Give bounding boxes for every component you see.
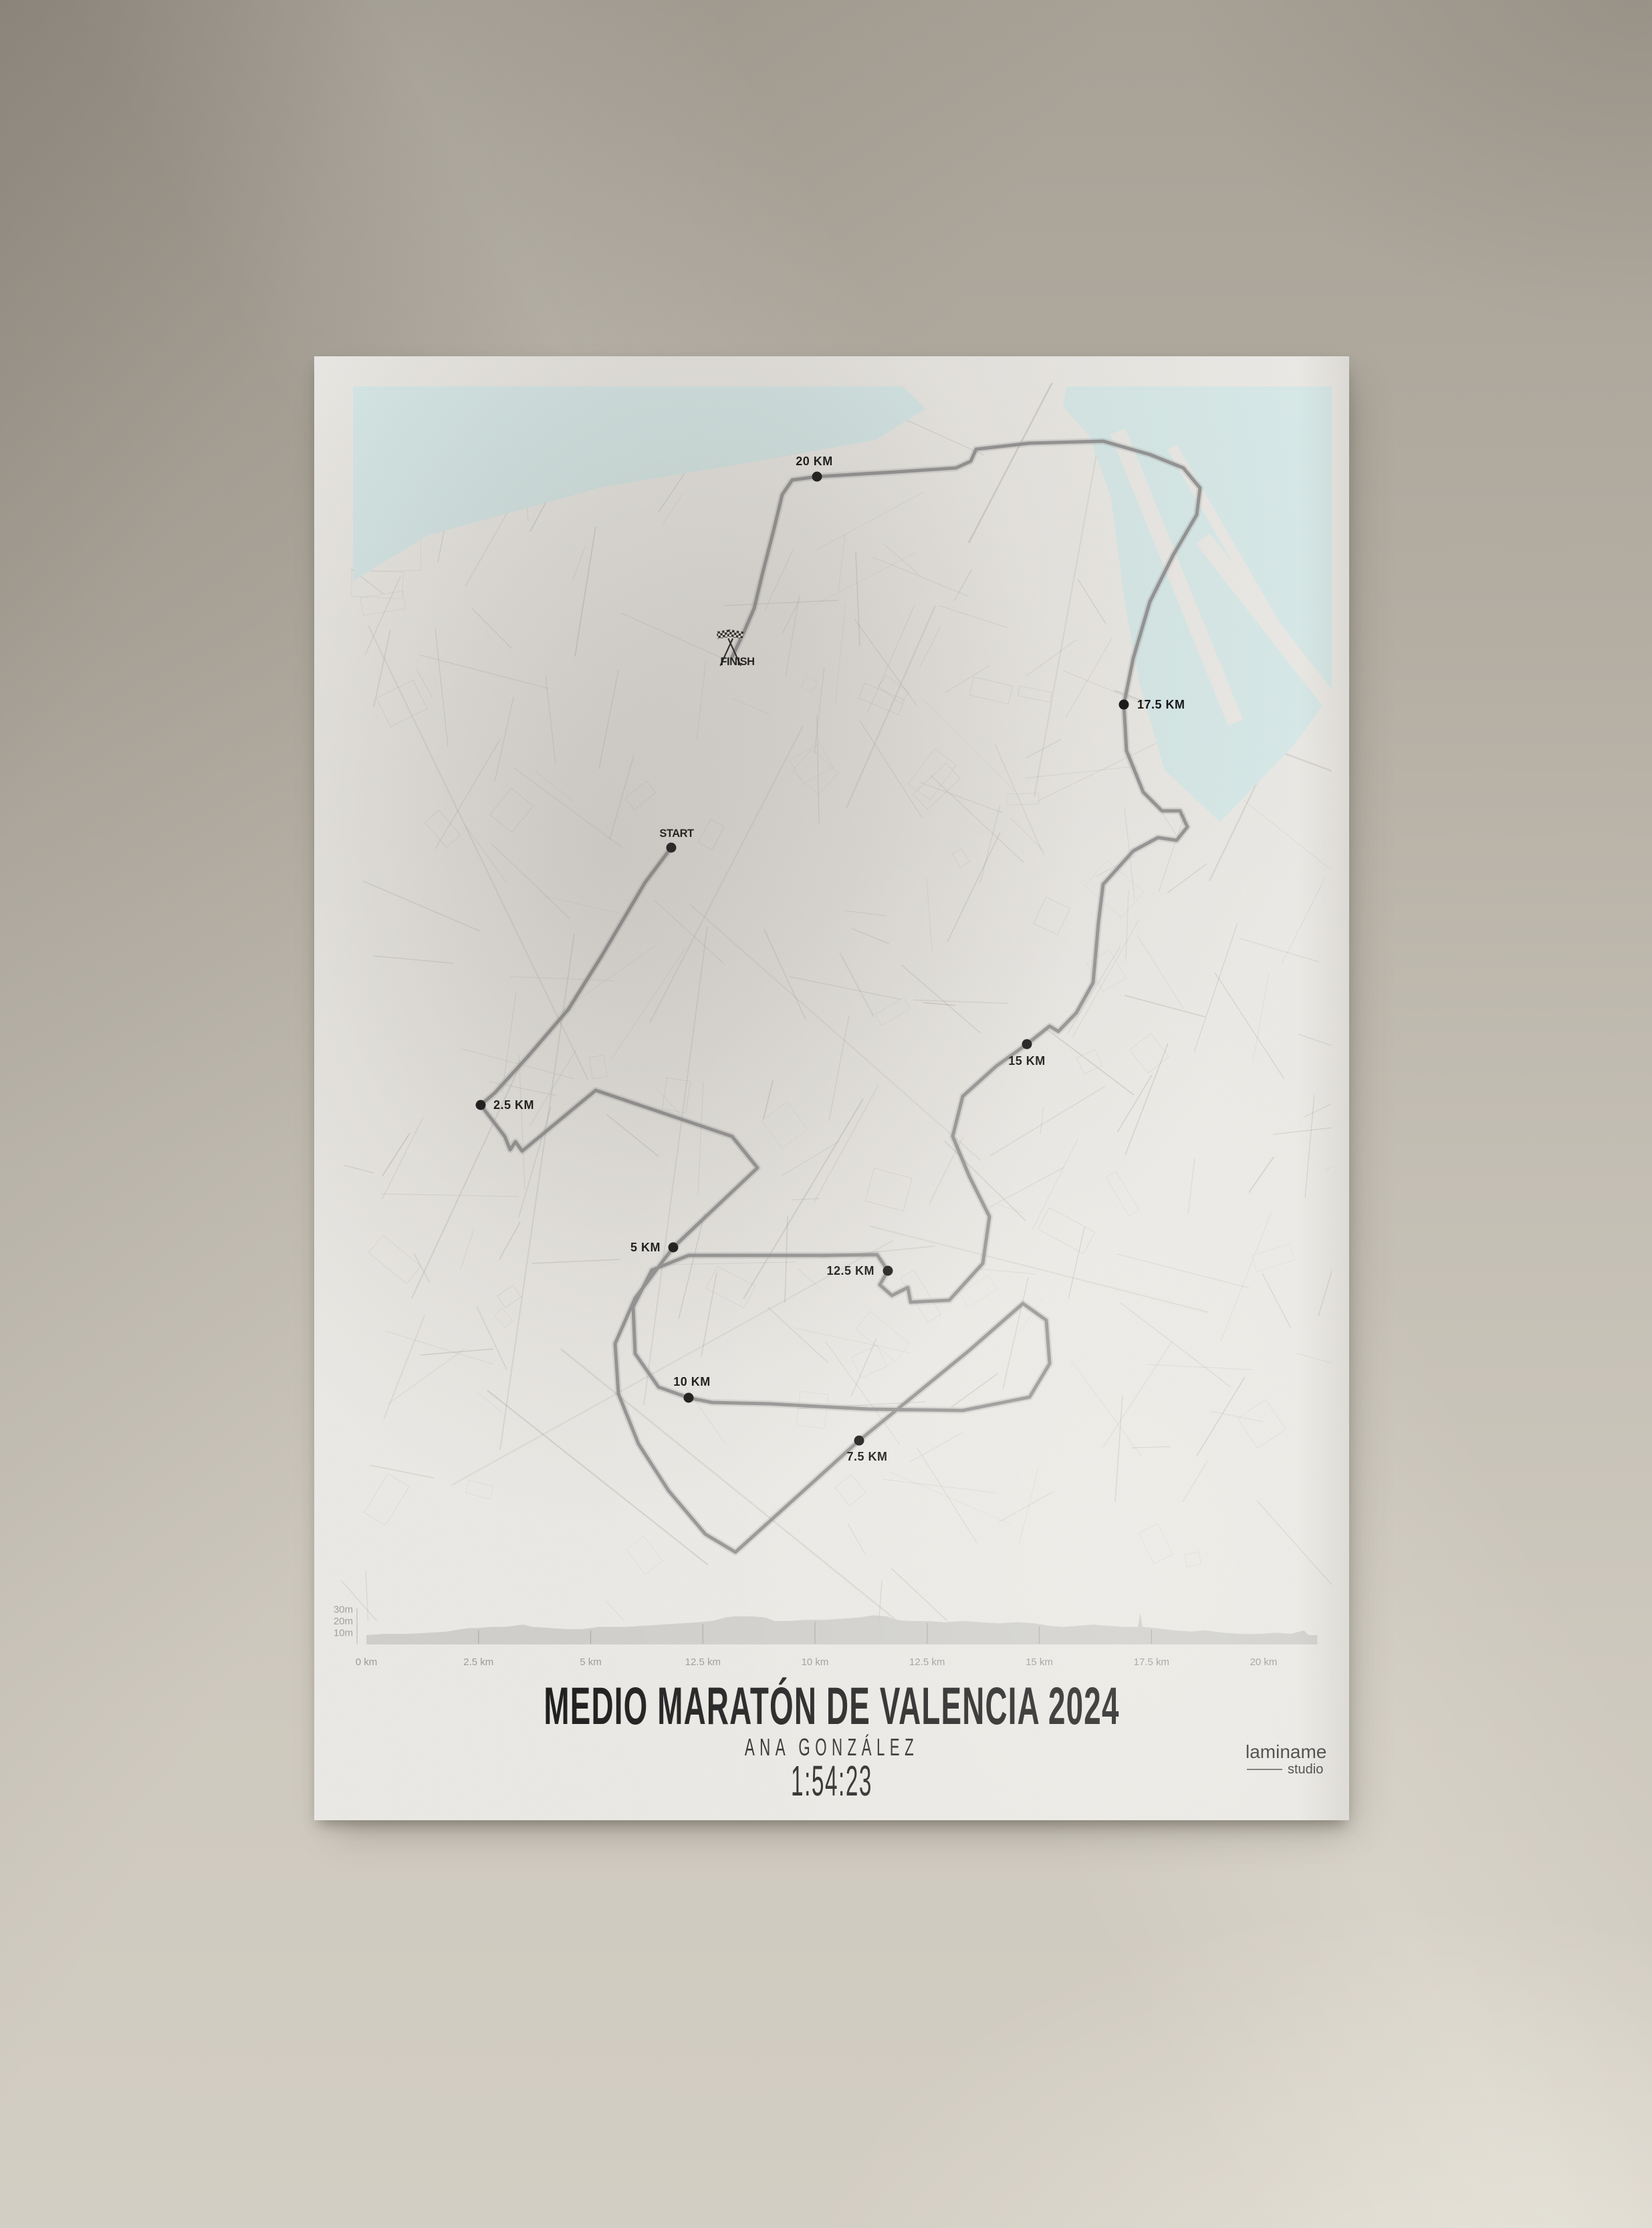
scene: { "poster": { "title": "MEDIO MARATÓN DE… xyxy=(0,0,1652,2228)
paper-grain xyxy=(314,356,1349,1820)
poster-artwork: 2.5 KM5 KM7.5 KM10 KM12.5 KM15 KM17.5 KM… xyxy=(314,356,1349,1820)
poster: 2.5 KM5 KM7.5 KM10 KM12.5 KM15 KM17.5 KM… xyxy=(314,356,1349,1820)
wall-background: 2.5 KM5 KM7.5 KM10 KM12.5 KM15 KM17.5 KM… xyxy=(0,0,1652,2228)
